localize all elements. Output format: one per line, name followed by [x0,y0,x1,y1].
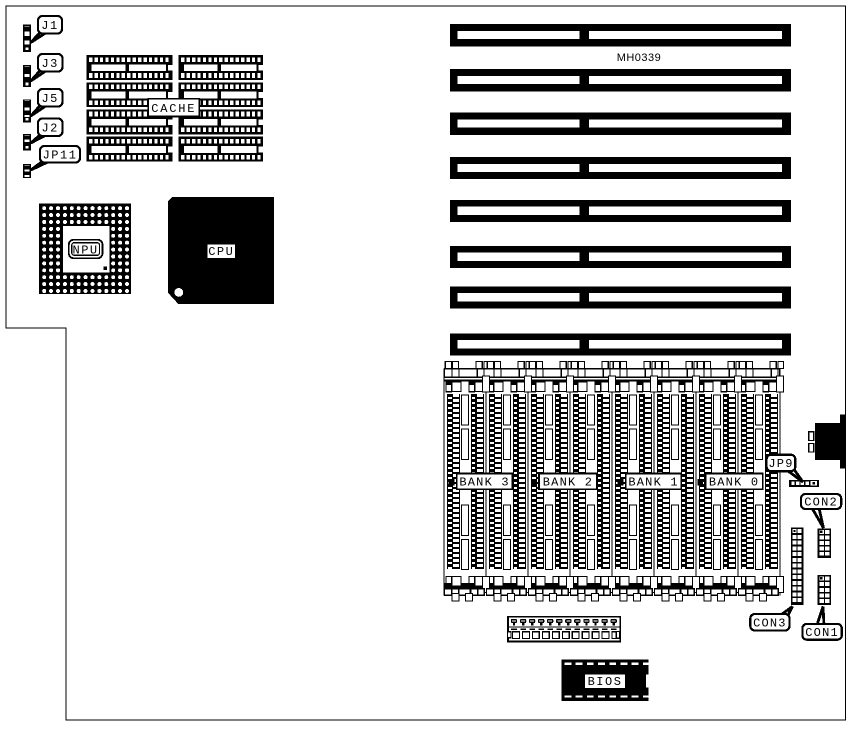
svg-text:J3: J3 [41,57,58,71]
svg-text:BIOS: BIOS [588,675,623,689]
svg-text:CON3: CON3 [753,617,787,631]
svg-text:NPU: NPU [73,244,99,258]
svg-text:CON2: CON2 [804,496,838,510]
svg-text:J1: J1 [41,19,58,33]
svg-text:JP11: JP11 [43,148,78,162]
svg-text:BANK 3: BANK 3 [459,476,509,490]
svg-text:CACHE: CACHE [151,102,196,116]
svg-text:CON1: CON1 [805,626,839,640]
svg-text:BANK 2: BANK 2 [543,476,593,490]
svg-text:CPU: CPU [208,245,234,259]
svg-text:MH0339: MH0339 [617,52,662,64]
svg-text:BANK 1: BANK 1 [628,476,678,490]
svg-text:BANK 0: BANK 0 [709,476,759,490]
svg-text:J5: J5 [41,92,58,106]
svg-text:JP9: JP9 [768,457,793,471]
svg-text:J2: J2 [41,121,58,135]
